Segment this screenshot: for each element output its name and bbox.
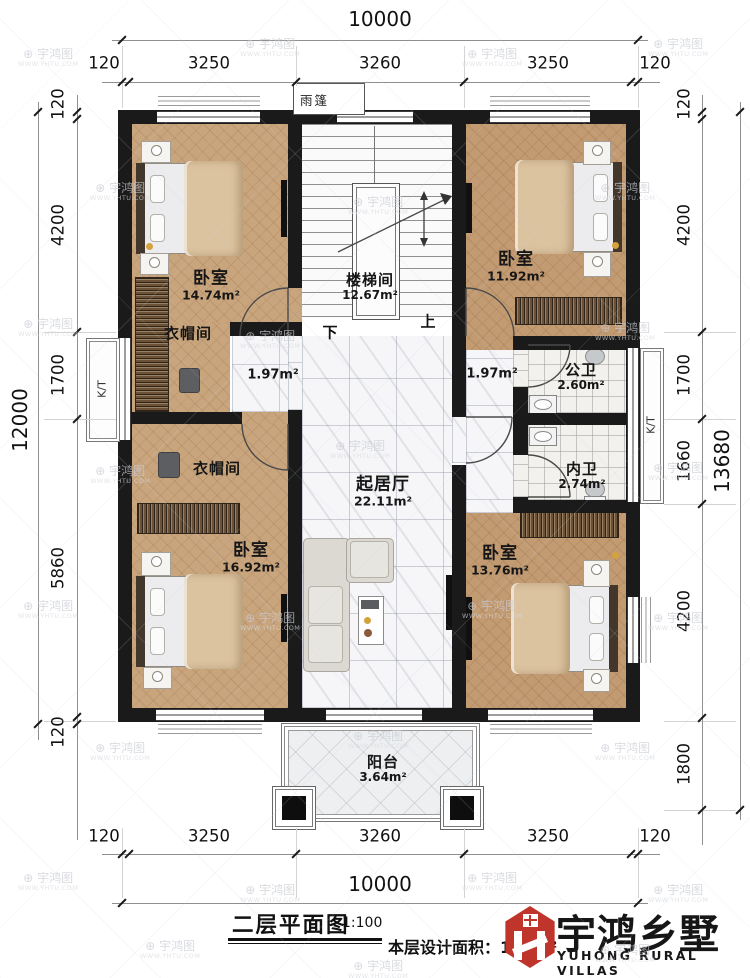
arrowhead-icon [420,191,428,200]
door-arc [242,424,288,470]
room-area: 22.11m² [354,495,412,509]
room-name: 衣帽间 [164,326,212,343]
room-label-cloakroom-2: 衣帽间 [193,461,241,478]
room-label-stairwell: 楼梯间 12.67m² [342,272,398,302]
room-area: 2.74m² [558,478,605,491]
room-label-living: 起居厅 22.11m² [354,475,412,508]
room-name: 起居厅 [354,475,412,494]
room-name: 卧室 [222,541,280,560]
arrowhead-icon [420,238,428,247]
door-arc [466,417,512,463]
room-label-bedroom-bl: 卧室 16.92m² [222,541,280,574]
room-label-bedroom-tl: 卧室 14.74m² [182,269,240,302]
room-area: 12.67m² [342,289,398,302]
room-area: 14.74m² [182,289,240,303]
room-label-balcony: 阳台 3.64m² [359,754,406,784]
room-name: 内卫 [558,461,605,478]
room-name: 卧室 [182,269,240,288]
room-name: 卧室 [487,250,545,269]
room-label-hall-right: 1.97m² [466,368,517,383]
room-area: 1.97m² [466,368,517,383]
room-name: 公卫 [557,362,604,379]
room-area: 2.60m² [557,379,604,392]
stair-down-label: 下 [322,322,337,343]
room-area: 1.97m² [247,369,298,384]
door-arc [466,288,514,336]
door-arc [240,288,288,336]
room-label-public-bath: 公卫 2.60m² [557,362,604,392]
floor-plan-canvas: K/T K/T 雨篷 卧室 14.74m² 楼梯间 12.67m [0,0,750,978]
room-name: 楼梯间 [342,272,398,289]
room-label-inner-bath: 内卫 2.74m² [558,461,605,491]
room-name: 卧室 [471,544,529,563]
room-name: 阳台 [359,754,406,771]
room-area: 13.76m² [471,564,529,578]
room-area: 16.92m² [222,561,280,575]
stair-arrow [338,198,448,252]
room-label-bedroom-tr: 卧室 11.92m² [487,250,545,283]
room-area: 11.92m² [487,270,545,284]
room-area: 3.64m² [359,771,406,784]
room-name: 衣帽间 [193,461,241,478]
room-label-hall-left: 1.97m² [247,369,298,384]
room-label-bedroom-br: 卧室 13.76m² [471,544,529,577]
arrowhead-icon [440,193,452,205]
stair-up-label: 上 [420,311,435,332]
room-label-cloakroom-1: 衣帽间 [164,326,212,343]
